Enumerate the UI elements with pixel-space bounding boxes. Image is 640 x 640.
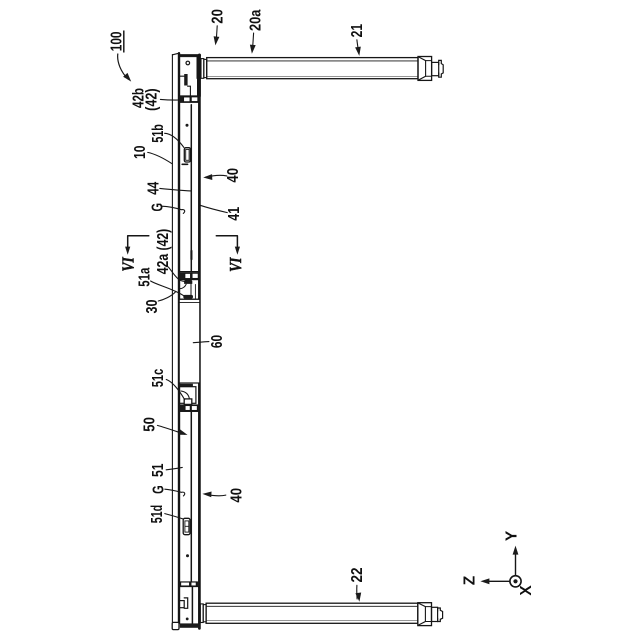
svg-text:51b: 51b [150, 124, 167, 143]
svg-text:30: 30 [144, 300, 161, 314]
svg-text:Y: Y [504, 530, 521, 541]
svg-text:21: 21 [349, 24, 366, 38]
svg-text:100: 100 [108, 32, 125, 52]
svg-text:VI: VI [119, 257, 138, 272]
svg-text:41: 41 [226, 206, 243, 220]
svg-text:20: 20 [209, 9, 226, 24]
svg-text:VI: VI [226, 257, 245, 272]
svg-text:44: 44 [146, 182, 163, 195]
svg-text:X: X [518, 585, 535, 596]
svg-text:22: 22 [349, 568, 366, 583]
svg-text:51c: 51c [150, 368, 167, 387]
svg-text:50: 50 [142, 417, 159, 432]
svg-text:42a (42): 42a (42) [155, 229, 172, 275]
svg-text:Z: Z [462, 575, 479, 585]
svg-text:20a: 20a [248, 9, 265, 31]
svg-text:60: 60 [209, 335, 226, 348]
svg-text:(42): (42) [143, 88, 160, 111]
svg-text:40: 40 [225, 168, 242, 183]
svg-text:51d: 51d [149, 505, 166, 524]
svg-text:40: 40 [228, 488, 245, 503]
svg-text:10: 10 [132, 145, 149, 159]
svg-text:G: G [150, 485, 167, 494]
svg-text:51: 51 [150, 463, 167, 477]
svg-text:51a: 51a [137, 267, 154, 286]
svg-text:G: G [149, 203, 166, 212]
